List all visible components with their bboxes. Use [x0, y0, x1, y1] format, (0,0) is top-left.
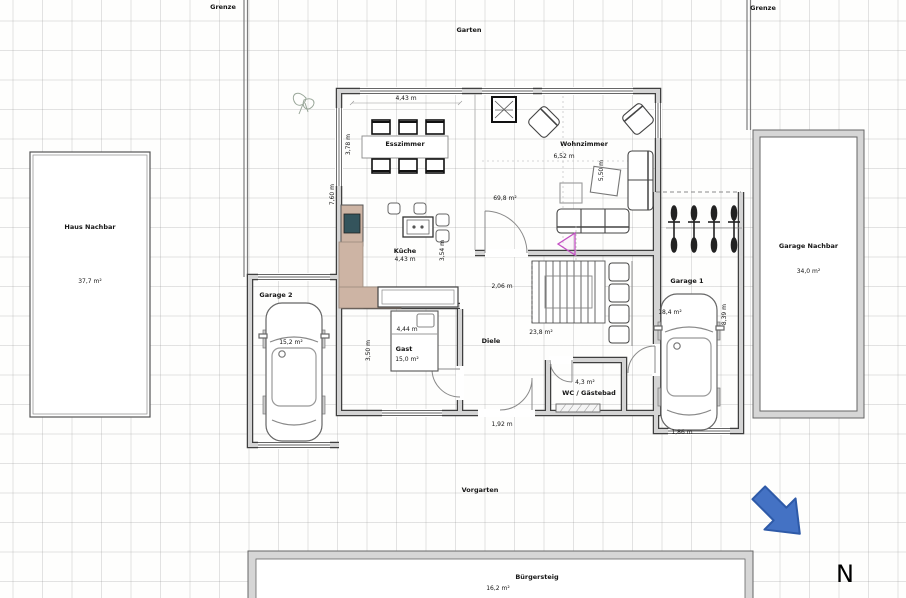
- wc-sink: [556, 404, 600, 412]
- label-garage1: Garage 1: [657, 278, 717, 285]
- label-open-living-area: 69,8 m²: [475, 196, 535, 203]
- stairs: [532, 261, 605, 323]
- dim-west-wing-depth: 7,60 m: [330, 184, 337, 205]
- label-kueche: Küche: [375, 248, 435, 255]
- dim-gast-width: 4,44 m: [382, 327, 432, 334]
- fireplace: [492, 97, 516, 122]
- dim-flur-width: 2,06 m: [477, 284, 527, 291]
- label-buergersteig-area: 16,2 m²: [468, 586, 528, 593]
- label-garten: Garten: [429, 27, 509, 34]
- dim-garage1-door: 1,86 m: [652, 430, 712, 437]
- dim-esszimmer-depth: 3,78 m: [346, 134, 353, 155]
- north-arrow-icon: [742, 484, 822, 564]
- label-grenze-right: Grenze: [743, 5, 783, 12]
- label-neighbor-garage-area: 34,0 m²: [753, 269, 864, 276]
- north-label: N: [836, 560, 854, 588]
- dim-garage1-depth: 8,39 m: [722, 304, 729, 325]
- label-neighbor-house: Haus Nachbar: [30, 224, 150, 231]
- label-diele: Diele: [466, 338, 516, 345]
- armchair-right: [621, 102, 655, 136]
- label-buergersteig: Bürgersteig: [497, 574, 577, 581]
- bike-rack: [666, 206, 742, 252]
- label-diele-area: 23,8 m²: [511, 330, 571, 337]
- dim-entry-width: 1,92 m: [472, 422, 532, 429]
- plant-sketch: [293, 93, 314, 114]
- label-neighbor-garage: Garage Nachbar: [753, 243, 864, 250]
- dim-kueche-width: 4,43 m: [375, 257, 435, 264]
- label-wc: WC / Gästebad: [549, 390, 629, 397]
- hall-cabinets: [609, 263, 629, 343]
- label-gast: Gast: [379, 346, 429, 353]
- dim-gast-depth: 3,50 m: [366, 340, 373, 361]
- garage2-car: [259, 303, 329, 441]
- label-neighbor-house-area: 37,7 m²: [30, 279, 150, 286]
- label-vorgarten: Vorgarten: [440, 487, 520, 494]
- label-garage2-area: 15,2 m²: [261, 340, 321, 347]
- armchair-left: [527, 105, 561, 139]
- label-garage2: Garage 2: [246, 292, 306, 299]
- floor-plan: Grenze Garten Grenze Haus Nachbar 37,7 m…: [0, 0, 906, 598]
- label-grenze-left: Grenze: [206, 4, 240, 11]
- label-wc-area: 4,3 m²: [555, 380, 615, 387]
- dim-esszimmer-width: 4,43 m: [376, 96, 436, 103]
- label-gast-area: 15,0 m²: [377, 357, 437, 364]
- dim-kueche-depth: 3,54 m: [440, 240, 447, 261]
- dim-wohnzimmer-depth: 5,50 m: [599, 160, 606, 181]
- label-wohnzimmer: Wohnzimmer: [544, 141, 624, 148]
- dim-wohnzimmer-width: 6,52 m: [534, 154, 594, 161]
- label-garage1-area: 18,4 m²: [640, 310, 700, 317]
- living-furniture: [527, 102, 655, 233]
- label-esszimmer: Esszimmer: [365, 141, 445, 148]
